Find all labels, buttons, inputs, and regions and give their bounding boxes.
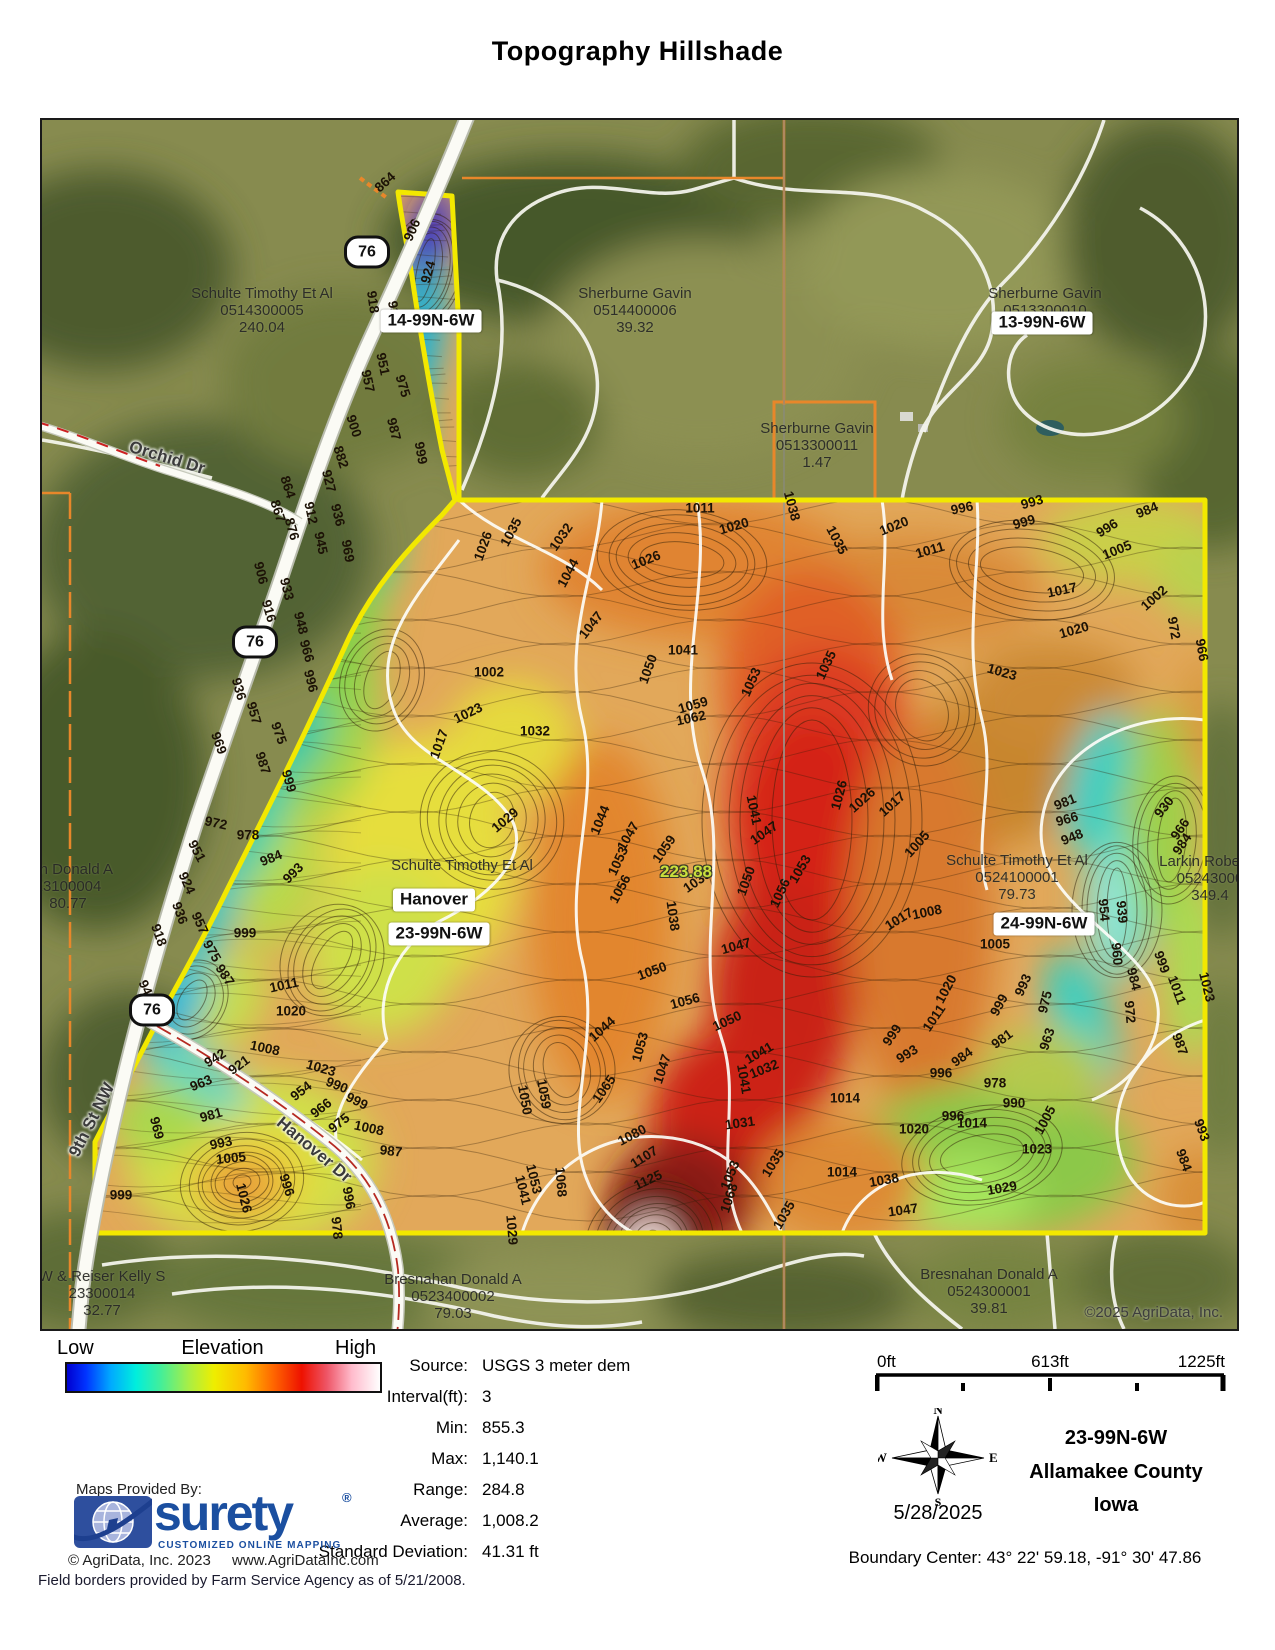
contour-label: 996 bbox=[340, 1186, 359, 1211]
contour-label: 948 bbox=[1059, 826, 1086, 848]
contour-label: 930 bbox=[1151, 794, 1177, 821]
contour-label: 1032 bbox=[546, 520, 576, 553]
stat-row: Interval(ft):3 bbox=[160, 1387, 720, 1407]
stat-value: 3 bbox=[482, 1387, 491, 1407]
road-label: Orchid Dr bbox=[127, 437, 208, 479]
contour-label: 1023 bbox=[1196, 971, 1218, 1004]
contour-label: 957 bbox=[189, 910, 212, 937]
contour-label: 1050 bbox=[515, 1084, 535, 1116]
compass-rose: N E S W bbox=[878, 1408, 998, 1508]
contour-label: 1014 bbox=[830, 1091, 860, 1106]
contour-label: 933 bbox=[277, 576, 297, 601]
contour-label: 1031 bbox=[724, 1113, 756, 1132]
contour-label: 1059 bbox=[649, 832, 679, 865]
contour-label: 918 bbox=[364, 290, 382, 314]
parcel-owner-label: Sherburne Gavin05133000111.47 bbox=[760, 420, 873, 471]
contour-label: 900 bbox=[343, 413, 364, 439]
stat-value: 284.8 bbox=[482, 1480, 525, 1500]
parcel-owner-label: Schulte Timothy Et Al0514300005240.04 bbox=[191, 285, 333, 336]
contour-label: 948 bbox=[291, 610, 311, 635]
contour-label: 1029 bbox=[489, 805, 522, 836]
contour-label: 996 bbox=[1093, 516, 1120, 541]
scalebar-end-label: 1225ft bbox=[1160, 1352, 1225, 1372]
parcel-owner-label: Schulte Timothy Et Al052410000179.73 bbox=[946, 852, 1088, 903]
section-township-tag: 14-99N-6W bbox=[381, 310, 482, 333]
contour-label: 1041 bbox=[744, 794, 765, 827]
parcel-owner-label: Schulte Timothy Et Al bbox=[391, 857, 533, 874]
contour-label: 993 bbox=[280, 860, 307, 887]
contour-label: 972 bbox=[1122, 1000, 1139, 1024]
location-state: Iowa bbox=[966, 1494, 1266, 1517]
contour-label: 1026 bbox=[233, 1182, 255, 1215]
contour-label: 1002 bbox=[474, 665, 504, 680]
contour-label: 876 bbox=[282, 516, 303, 542]
contour-label: 1020 bbox=[276, 1004, 306, 1019]
contour-label: 1005 bbox=[980, 937, 1010, 952]
stat-label: Range: bbox=[413, 1480, 468, 1500]
contour-label: 987 bbox=[1169, 1031, 1191, 1057]
registered-mark: ® bbox=[342, 1490, 352, 1505]
contour-label: 1044 bbox=[554, 556, 581, 590]
stat-value: USGS 3 meter dem bbox=[482, 1356, 630, 1376]
contour-label: 1035 bbox=[823, 523, 850, 557]
page-title: Topography Hillshade bbox=[0, 36, 1275, 67]
contour-label: 987 bbox=[212, 961, 237, 988]
stat-value: 41.31 ft bbox=[482, 1542, 539, 1562]
contour-label: 1023 bbox=[1022, 1142, 1052, 1157]
stat-value: 855.3 bbox=[482, 1418, 525, 1438]
contour-label: 1014 bbox=[827, 1165, 857, 1180]
contour-label: 1050 bbox=[635, 959, 668, 983]
contour-label: 987 bbox=[252, 750, 273, 776]
stat-row: Max:1,140.1 bbox=[160, 1449, 720, 1469]
scalebar-start-label: 0ft bbox=[877, 1352, 896, 1372]
contour-label: 996 bbox=[949, 498, 974, 517]
contour-label: 1038 bbox=[663, 900, 682, 932]
contour-label: 969 bbox=[208, 730, 230, 756]
contour-label: 954 bbox=[288, 1078, 315, 1104]
contour-label: 972 bbox=[1165, 616, 1184, 641]
contour-label: 1017 bbox=[876, 788, 908, 819]
contour-label: 1056 bbox=[606, 872, 633, 906]
contour-label: 1041 bbox=[668, 643, 698, 658]
contour-label: 1050 bbox=[710, 1008, 744, 1034]
contour-label: 978 bbox=[328, 1216, 345, 1240]
contour-label: 999 bbox=[1011, 512, 1037, 533]
contour-label: 1047 bbox=[720, 935, 753, 957]
compass-n: N bbox=[933, 1408, 943, 1417]
surety-wordmark: surety bbox=[154, 1484, 292, 1542]
contour-label: 975 bbox=[200, 937, 224, 964]
contour-label: 978 bbox=[984, 1076, 1007, 1091]
location-township: 23-99N-6W bbox=[966, 1427, 1266, 1450]
contour-label: 1038 bbox=[781, 490, 803, 523]
compass-w: W bbox=[878, 1450, 887, 1465]
contour-label: 987 bbox=[384, 416, 404, 441]
contour-label: 957 bbox=[358, 368, 377, 393]
contour-label: 916 bbox=[259, 598, 280, 624]
contour-label: 1011 bbox=[920, 1002, 949, 1035]
contour-label: 993 bbox=[1012, 972, 1035, 999]
section-township-tag: 13-99N-6W bbox=[992, 312, 1093, 335]
contour-label: 1053 bbox=[738, 665, 764, 699]
contour-label: 1068 bbox=[552, 1166, 570, 1197]
contour-label: 990 bbox=[324, 1074, 351, 1096]
section-township-tag: 24-99N-6W bbox=[994, 913, 1095, 936]
contour-label: 951 bbox=[185, 838, 209, 865]
contour-label: 1008 bbox=[911, 902, 944, 923]
contour-label: 1005 bbox=[1031, 1103, 1058, 1137]
surety-logo: surety ® CUSTOMIZED ONLINE MAPPING bbox=[74, 1496, 152, 1550]
contour-label: 936 bbox=[169, 900, 191, 926]
surety-globe-icon bbox=[74, 1496, 152, 1550]
contour-label: 924 bbox=[176, 870, 199, 897]
parcel-acreage-tag: 223.88 bbox=[660, 862, 712, 882]
contour-label: 993 bbox=[893, 1042, 920, 1067]
contour-label: 963 bbox=[188, 1072, 215, 1094]
stat-value: 1,008.2 bbox=[482, 1511, 539, 1531]
contour-label: 999 bbox=[1151, 949, 1173, 975]
contour-label: 999 bbox=[234, 926, 257, 941]
scalebar-mid-label: 613ft bbox=[990, 1352, 1110, 1372]
contour-label: 960 bbox=[1109, 942, 1126, 966]
contour-label: 864 bbox=[277, 474, 298, 500]
contour-label: 1008 bbox=[249, 1038, 282, 1059]
contour-label: 957 bbox=[244, 700, 265, 726]
contour-label: 936 bbox=[328, 502, 348, 527]
contour-label: 1035 bbox=[759, 1146, 788, 1179]
contour-label: 951 bbox=[373, 351, 392, 376]
field-borders-note: Field borders provided by Farm Service A… bbox=[38, 1572, 466, 1589]
contour-label: 990 bbox=[1003, 1096, 1026, 1111]
contour-label: 912 bbox=[301, 500, 320, 525]
footer-website: www.AgriDataInc.com bbox=[232, 1552, 379, 1569]
contour-label: 963 bbox=[1036, 1026, 1057, 1052]
contour-label: 1047 bbox=[576, 609, 606, 642]
page: { "title": "Topography Hillshade", "map"… bbox=[0, 0, 1275, 1650]
contour-label: 1023 bbox=[451, 700, 485, 727]
stat-label: Max: bbox=[431, 1449, 468, 1469]
contour-label: 1011 bbox=[268, 975, 300, 996]
contour-label: 984 bbox=[258, 847, 285, 869]
contour-label: 993 bbox=[1191, 1117, 1213, 1143]
stat-row: Min:855.3 bbox=[160, 1418, 720, 1438]
contour-label: 984 bbox=[1134, 499, 1161, 521]
stat-label: Interval(ft): bbox=[387, 1387, 468, 1407]
contour-label: 999 bbox=[987, 992, 1011, 1019]
contour-label: 1035 bbox=[813, 648, 839, 682]
section-township-tag: Hanover bbox=[393, 889, 475, 912]
map-labels-layer: 8649069249189399519579759879999008829279… bbox=[42, 120, 1237, 1329]
contour-label: 969 bbox=[147, 1115, 167, 1140]
contour-label: 999 bbox=[344, 1089, 371, 1112]
contour-label: 918 bbox=[148, 922, 170, 948]
stat-label: Average: bbox=[400, 1511, 468, 1531]
scalebar bbox=[875, 1373, 1227, 1393]
contour-label: 966 bbox=[1193, 638, 1212, 663]
route-76-shield: 76 bbox=[232, 626, 278, 659]
contour-label: 1032 bbox=[520, 724, 550, 739]
contour-label: 945 bbox=[311, 530, 330, 555]
contour-label: 972 bbox=[203, 813, 228, 832]
contour-label: 1026 bbox=[471, 529, 495, 562]
contour-label: 993 bbox=[1019, 492, 1045, 513]
parcel-owner-label: Bresnahan Donald A052430000139.81 bbox=[920, 1266, 1058, 1317]
contour-label: 981 bbox=[988, 1026, 1015, 1051]
contour-label: 1026 bbox=[629, 547, 662, 572]
contour-label: 966 bbox=[297, 638, 318, 664]
legend-low-label: Low bbox=[57, 1337, 94, 1360]
contour-label: 882 bbox=[330, 444, 351, 470]
contour-label: 975 bbox=[1035, 989, 1055, 1014]
surety-tagline: CUSTOMIZED ONLINE MAPPING bbox=[158, 1540, 341, 1551]
contour-label: 954 bbox=[1096, 898, 1113, 922]
contour-label: 906 bbox=[401, 217, 424, 244]
contour-label: 906 bbox=[251, 560, 271, 585]
contour-label: 981 bbox=[198, 1105, 224, 1126]
contour-label: 1011 bbox=[914, 539, 946, 561]
contour-label: 987 bbox=[379, 1142, 403, 1159]
contour-label: 975 bbox=[393, 373, 414, 399]
contour-label: 1035 bbox=[770, 1198, 798, 1232]
contour-label: 969 bbox=[339, 539, 358, 564]
route-76-shield: 76 bbox=[129, 994, 175, 1027]
contour-label: 996 bbox=[930, 1066, 953, 1081]
parcel-owner-label: Bresnahan Donald A052340000279.03 bbox=[384, 1271, 522, 1322]
contour-label: 996 bbox=[276, 1172, 297, 1198]
contour-label: 1035 bbox=[497, 515, 524, 549]
contour-label: 1080 bbox=[615, 1121, 649, 1148]
contour-label: 1020 bbox=[932, 972, 959, 1006]
contour-label: 984 bbox=[1124, 966, 1144, 991]
contour-label: 966 bbox=[308, 1095, 335, 1121]
contour-label: 1017 bbox=[427, 727, 451, 760]
contour-label: 1053 bbox=[605, 844, 631, 878]
contour-label: 999 bbox=[110, 1188, 133, 1203]
contour-label: 1029 bbox=[503, 1214, 521, 1245]
road-label: 9th St NW bbox=[65, 1080, 119, 1161]
contour-label: 921 bbox=[225, 1052, 252, 1077]
stat-row: Source:USGS 3 meter dem bbox=[160, 1356, 720, 1376]
contour-label: 1008 bbox=[353, 1118, 386, 1139]
contour-label: 1047 bbox=[650, 1052, 674, 1085]
contour-label: 999 bbox=[279, 768, 300, 794]
contour-label: 1020 bbox=[899, 1122, 929, 1137]
contour-label: 1050 bbox=[734, 864, 758, 897]
contour-label: 924 bbox=[418, 259, 439, 285]
contour-label: 1056 bbox=[669, 990, 702, 1012]
contour-label: 1011 bbox=[1165, 974, 1189, 1007]
contour-label: 1002 bbox=[1138, 582, 1170, 613]
contour-label: 1005 bbox=[901, 828, 932, 860]
contour-label: 1044 bbox=[586, 1013, 618, 1044]
boundary-center: Boundary Center: 43° 22' 59.18, -91° 30'… bbox=[790, 1548, 1260, 1568]
contour-label: 996 bbox=[301, 668, 321, 693]
footer-copyright: © AgriData, Inc. 2023 bbox=[68, 1552, 211, 1569]
contour-label: 1020 bbox=[1057, 619, 1090, 642]
contour-label: 1038 bbox=[868, 1170, 900, 1190]
contour-label: 1020 bbox=[717, 515, 750, 538]
contour-label: 999 bbox=[412, 441, 431, 466]
parcel-owner-label: W & Reiser Kelly S2330001432.77 bbox=[40, 1268, 165, 1319]
stat-label: Source: bbox=[409, 1356, 468, 1376]
parcel-owner-label: han Donald A2310000480.77 bbox=[40, 861, 113, 912]
stat-value: 1,140.1 bbox=[482, 1449, 539, 1469]
contour-label: 864 bbox=[372, 169, 399, 195]
contour-label: 975 bbox=[326, 1110, 353, 1136]
contour-label: 984 bbox=[1173, 1147, 1195, 1173]
contour-label: 1017 bbox=[1046, 580, 1079, 601]
contour-label: 1056 bbox=[767, 876, 793, 910]
contour-label: 1017 bbox=[882, 905, 915, 934]
contour-label: 1050 bbox=[636, 652, 660, 685]
contour-label: 1047 bbox=[887, 1200, 919, 1219]
contour-label: 1023 bbox=[985, 661, 1018, 684]
contour-label: 978 bbox=[237, 828, 260, 843]
stat-label: Min: bbox=[436, 1418, 468, 1438]
contour-label: 1005 bbox=[215, 1149, 246, 1167]
contour-label: 1044 bbox=[587, 803, 612, 836]
contour-label: 1020 bbox=[877, 513, 910, 538]
contour-label: 936 bbox=[229, 676, 250, 702]
section-township-tag: 23-99N-6W bbox=[389, 923, 490, 946]
contour-label: 939 bbox=[1114, 900, 1131, 924]
route-76-shield: 76 bbox=[344, 236, 390, 269]
contour-label: 975 bbox=[268, 720, 290, 746]
contour-label: 1005 bbox=[1100, 537, 1133, 562]
contour-label: 1065 bbox=[589, 1072, 619, 1105]
parcel-owner-label: Sherburne Gavin051440000639.32 bbox=[578, 285, 691, 336]
contour-label: 1026 bbox=[846, 784, 878, 815]
contour-label: 942 bbox=[201, 1046, 228, 1071]
parcel-owner-label: Larkin Robert J05243000349.4 bbox=[1159, 853, 1239, 904]
contour-label: 1029 bbox=[986, 1178, 1018, 1198]
contour-label: 1053 bbox=[786, 852, 814, 886]
map-copyright: ©2025 AgriData, Inc. bbox=[1084, 1304, 1223, 1321]
contour-label: 1011 bbox=[685, 501, 714, 516]
contour-label: 927 bbox=[319, 468, 339, 493]
topography-map: 8649069249189399519579759879999008829279… bbox=[40, 118, 1239, 1331]
contour-label: 999 bbox=[879, 1021, 904, 1048]
location-county: Allamakee County bbox=[966, 1461, 1266, 1484]
contour-label: 1053 bbox=[629, 1031, 651, 1064]
contour-label: 1059 bbox=[534, 1078, 554, 1110]
contour-label: 1125 bbox=[632, 1167, 665, 1193]
contour-label: 1014 bbox=[957, 1116, 987, 1131]
